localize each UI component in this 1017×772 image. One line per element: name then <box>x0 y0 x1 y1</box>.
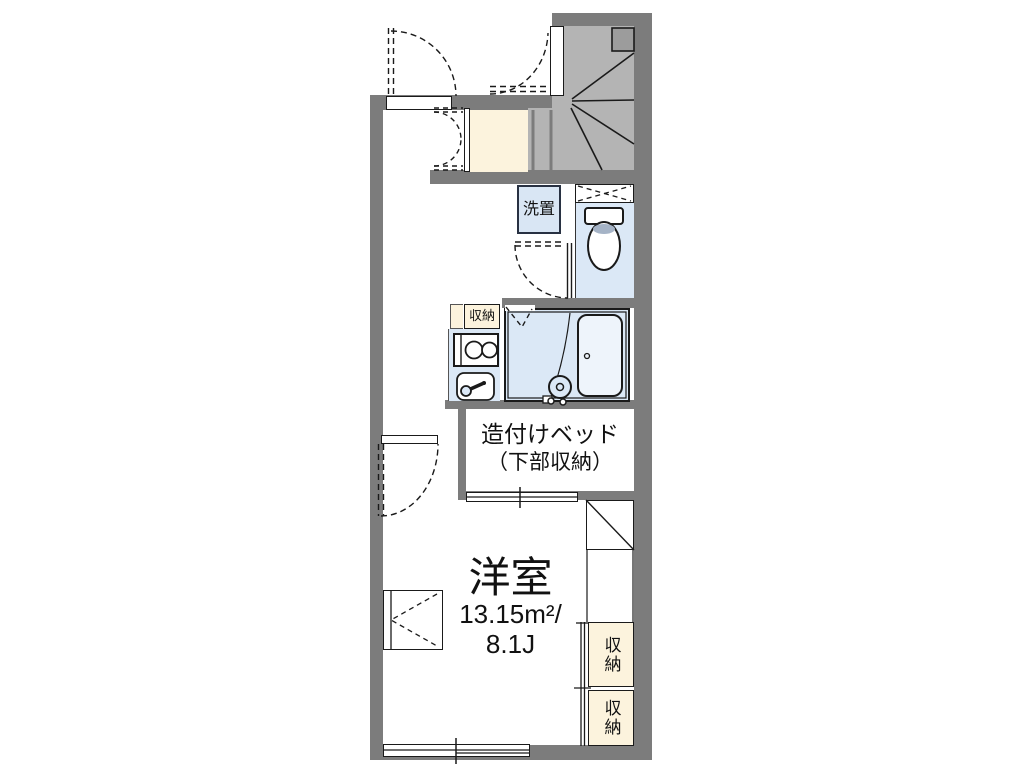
hall-south-wall <box>430 170 652 184</box>
kitchen-counter <box>448 329 500 401</box>
kitchen-storage-label: 収納 <box>464 304 500 329</box>
floor-plan: 洗置 収納 造付けベッド （下部収納） 洋室 13.15m²/ 8.1J 収納 … <box>0 0 1017 772</box>
bathroom <box>504 308 630 402</box>
bath-north-wall <box>502 298 634 308</box>
closet-upper-label: 収納 <box>588 622 634 687</box>
room-name: 洋室 <box>418 556 603 600</box>
bifold-door-swing <box>434 108 463 170</box>
built-in-bed-label-line2: （下部収納） <box>487 450 613 475</box>
bed-west-wall <box>458 409 466 493</box>
bifold-door-frame <box>464 108 470 172</box>
entrance-door-swing <box>389 28 457 96</box>
built-in-bed-label-line1: 造付けベッド <box>481 420 619 450</box>
bottom-window <box>383 744 530 757</box>
room-area: 13.15m²/ <box>418 600 603 630</box>
staircase-steps <box>528 108 570 170</box>
right-wall <box>634 13 652 760</box>
bed-window <box>466 492 578 502</box>
kitchen-storage-strip <box>450 304 463 329</box>
entrance-door-leaf <box>386 96 452 110</box>
stair-door-leaf <box>550 26 564 96</box>
laundry-label: 洗置 <box>517 185 561 234</box>
closet-lower-label: 収納 <box>588 690 634 746</box>
room-size-tatami: 8.1J <box>418 630 603 660</box>
room-door-leaf <box>381 435 438 444</box>
fridge-space <box>586 500 634 550</box>
toilet-door-swing <box>515 242 572 298</box>
room-door-swing <box>379 444 439 516</box>
entrance-genkan <box>470 110 528 172</box>
stair-door-swing <box>490 33 548 94</box>
built-in-bed-label: 造付けベッド （下部収納） <box>466 412 634 484</box>
stair-north-wall <box>552 13 652 26</box>
left-wall <box>370 95 383 760</box>
room-label: 洋室 13.15m²/ 8.1J <box>418 556 603 660</box>
toilet-window <box>575 184 634 203</box>
toilet-room <box>575 203 634 298</box>
